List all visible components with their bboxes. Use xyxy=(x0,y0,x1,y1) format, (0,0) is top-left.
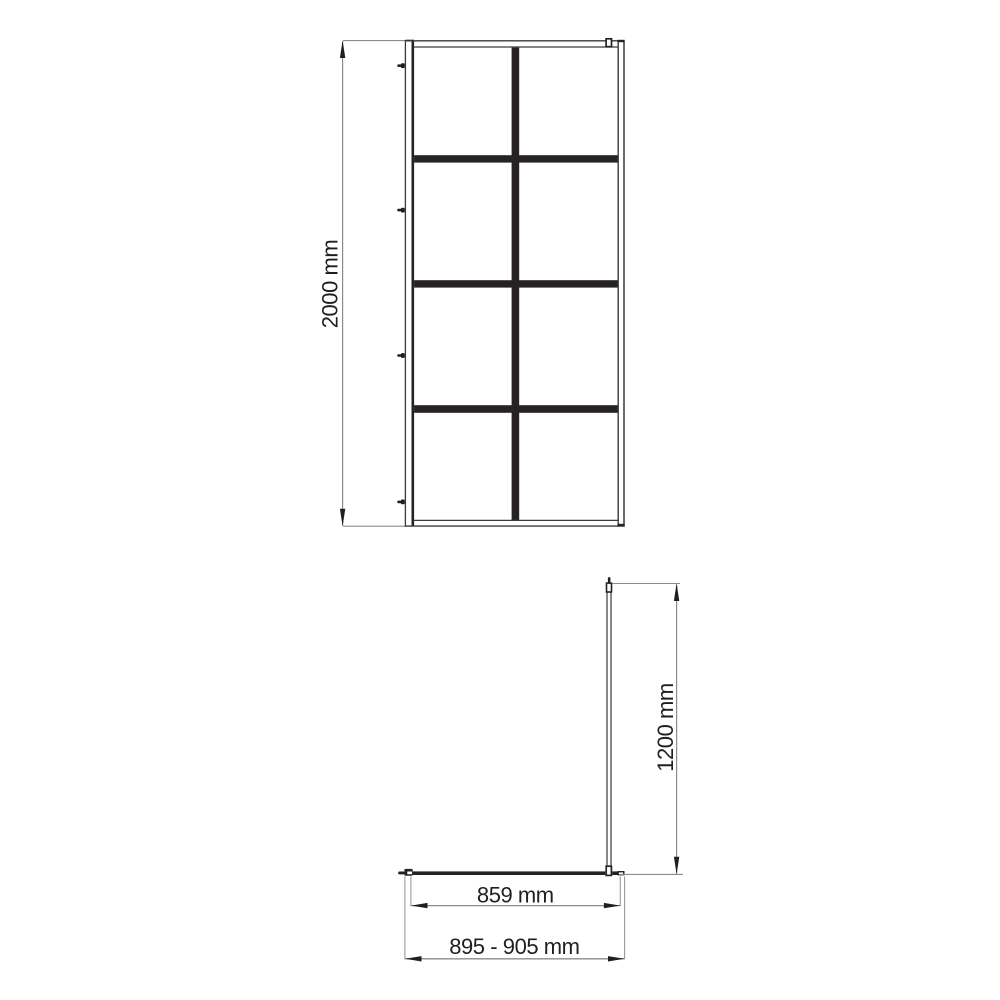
svg-text:1200 mm: 1200 mm xyxy=(653,683,678,772)
svg-text:859 mm: 859 mm xyxy=(477,883,554,908)
svg-text:2000 mm: 2000 mm xyxy=(318,240,343,329)
svg-text:895 - 905 mm: 895 - 905 mm xyxy=(449,934,579,959)
